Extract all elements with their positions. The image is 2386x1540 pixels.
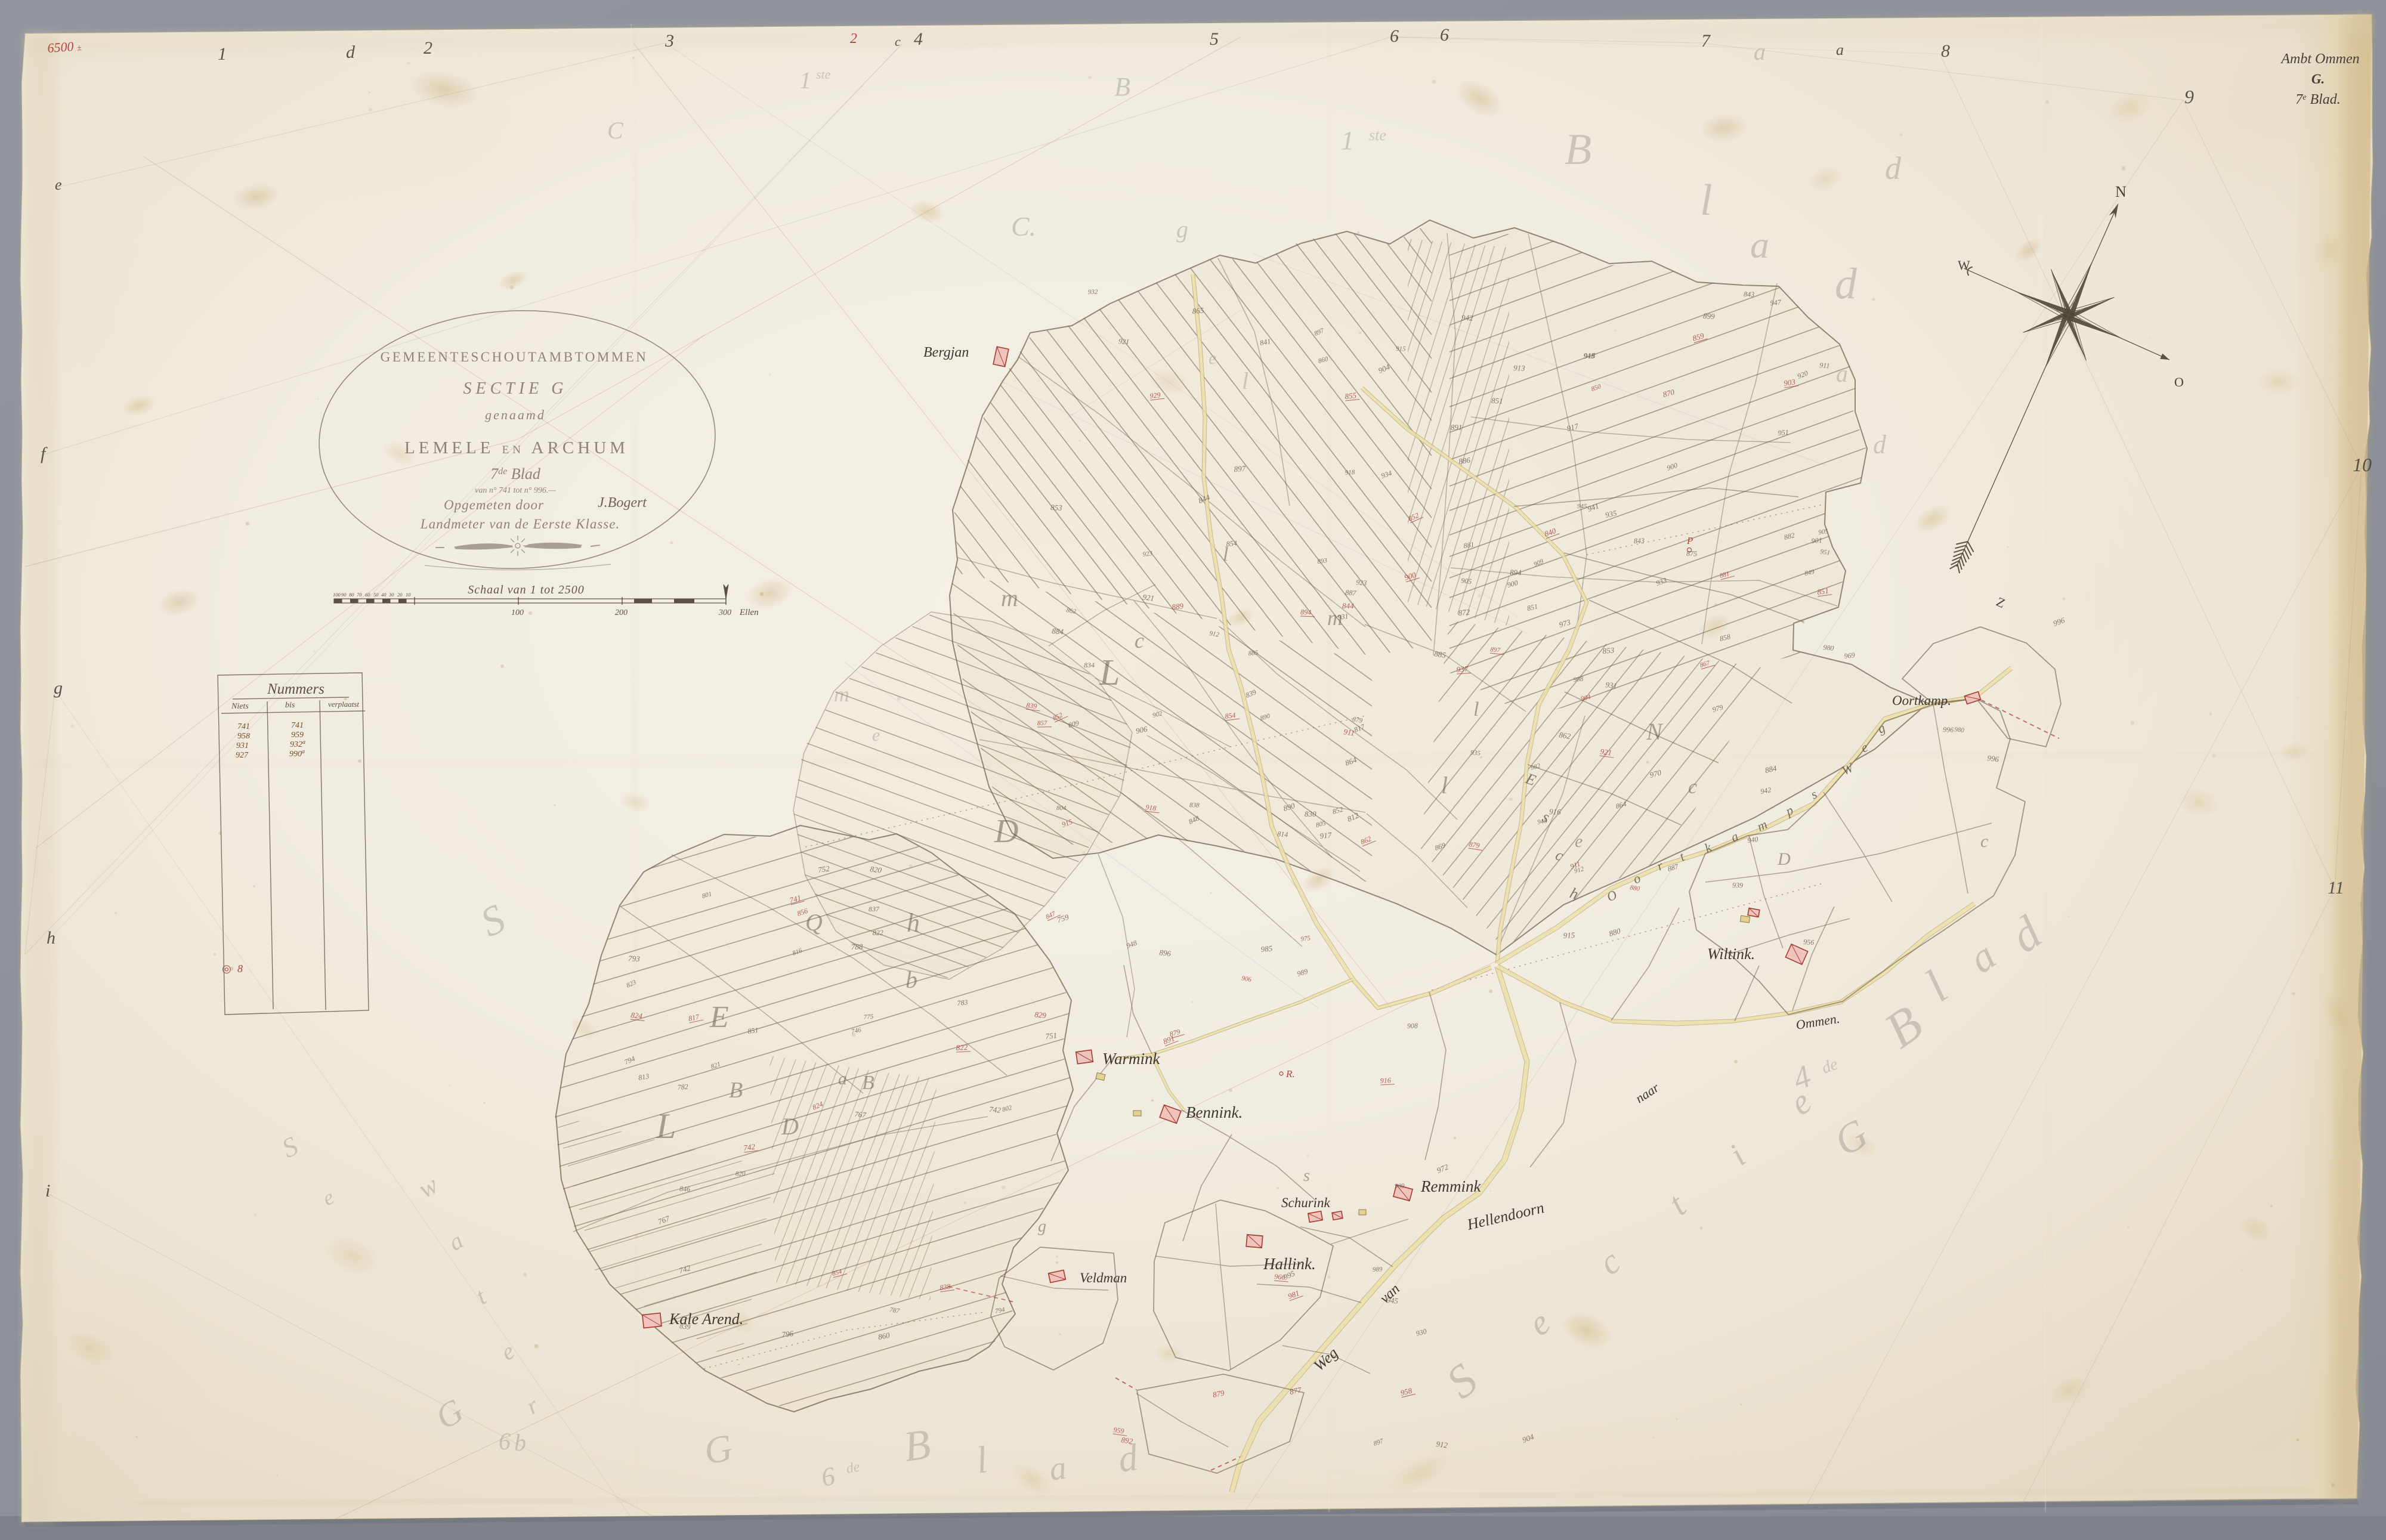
svg-text:788: 788 — [851, 942, 864, 951]
svg-text:GEMEENTESCHOUTAMBTOMMEN: GEMEENTESCHOUTAMBTOMMEN — [381, 350, 648, 364]
svg-text:◎: ◎ — [222, 963, 231, 975]
svg-text:a: a — [1836, 360, 1848, 387]
svg-text:g: g — [54, 678, 63, 698]
svg-text:909: 909 — [1395, 1183, 1405, 1190]
svg-text:767: 767 — [854, 1109, 867, 1120]
svg-text:923: 923 — [1142, 550, 1153, 558]
svg-text:894: 894 — [1300, 608, 1311, 617]
svg-text:988: 988 — [1573, 676, 1584, 684]
svg-text:3: 3 — [665, 31, 674, 51]
svg-text:Ambt Ommen: Ambt Ommen — [2280, 51, 2359, 67]
svg-text:846: 846 — [679, 1185, 690, 1193]
svg-text:40: 40 — [381, 592, 387, 598]
svg-text:913: 913 — [1513, 363, 1526, 373]
svg-text:Landmeter van de Eerste Klasse: Landmeter van de Eerste Klasse. — [420, 517, 620, 531]
svg-text:917: 917 — [1319, 830, 1332, 840]
svg-text:951: 951 — [1820, 548, 1831, 556]
svg-text:ste: ste — [816, 67, 831, 82]
svg-text:921: 921 — [1142, 592, 1155, 603]
svg-text:862: 862 — [1559, 730, 1572, 741]
svg-text:D: D — [994, 813, 1018, 850]
svg-text:918: 918 — [1584, 351, 1596, 360]
svg-text:796: 796 — [781, 1329, 794, 1339]
svg-text:985: 985 — [1260, 944, 1273, 954]
svg-text:L: L — [656, 1106, 676, 1146]
svg-text:Schaal van 1 tot 2500: Schaal van 1 tot 2500 — [468, 583, 584, 596]
svg-text:b: b — [514, 1429, 526, 1456]
svg-text:881: 881 — [1463, 540, 1475, 550]
svg-text:L: L — [1099, 653, 1120, 693]
svg-text:937: 937 — [1456, 664, 1469, 674]
svg-text:916: 916 — [1380, 1076, 1391, 1085]
svg-text:931: 931 — [236, 741, 249, 750]
svg-text:m: m — [1327, 606, 1343, 630]
svg-text:8: 8 — [1941, 41, 1950, 61]
svg-text:a: a — [1750, 224, 1769, 266]
svg-text:839: 839 — [1026, 701, 1038, 710]
svg-text:932: 932 — [1088, 289, 1098, 296]
svg-text:genaamd: genaamd — [485, 407, 546, 422]
svg-text:966: 966 — [1274, 1272, 1285, 1282]
svg-text:820: 820 — [735, 1170, 746, 1177]
svg-text:875: 875 — [1686, 549, 1697, 558]
svg-text:751: 751 — [1045, 1031, 1058, 1041]
svg-text:851: 851 — [747, 1026, 759, 1035]
svg-text:884: 884 — [1052, 626, 1064, 636]
svg-text:804: 804 — [1056, 805, 1067, 812]
svg-text:824: 824 — [631, 1010, 643, 1021]
svg-text:899: 899 — [1703, 311, 1716, 321]
svg-text:N: N — [2115, 183, 2127, 200]
svg-text:W: W — [1958, 258, 1970, 273]
svg-text:940: 940 — [1747, 835, 1759, 845]
svg-text:verplaatst: verplaatst — [328, 700, 359, 709]
svg-text:893: 893 — [1317, 557, 1328, 565]
svg-text:891: 891 — [1451, 423, 1463, 432]
svg-text:918: 918 — [1345, 469, 1355, 477]
svg-text:100: 100 — [511, 608, 524, 617]
svg-text:O: O — [2174, 375, 2184, 389]
svg-text:872: 872 — [1458, 607, 1470, 617]
svg-text:889: 889 — [1172, 601, 1184, 611]
svg-text:van n° 741 tot n° 996.—: van n° 741 tot n° 996.— — [475, 486, 556, 495]
svg-text:9: 9 — [2184, 86, 2194, 107]
svg-text:956: 956 — [1803, 938, 1815, 947]
svg-text:1: 1 — [218, 44, 227, 64]
svg-text:929: 929 — [1149, 391, 1161, 400]
svg-text:b: b — [905, 966, 917, 993]
svg-text:Q: Q — [805, 909, 823, 936]
svg-text:752: 752 — [817, 864, 830, 874]
svg-text:l: l — [1700, 176, 1713, 225]
svg-text:996: 996 — [1943, 725, 1954, 734]
svg-text:2: 2 — [850, 31, 857, 47]
svg-text:935: 935 — [1470, 749, 1481, 757]
svg-text:915: 915 — [1563, 930, 1575, 940]
svg-text:838: 838 — [1189, 802, 1200, 809]
svg-text:a: a — [1754, 38, 1766, 65]
svg-text:6: 6 — [1390, 26, 1399, 46]
svg-text:50: 50 — [373, 592, 379, 598]
svg-text:844: 844 — [1342, 601, 1354, 610]
svg-text:911: 911 — [1819, 361, 1830, 370]
svg-text:901: 901 — [1811, 536, 1822, 545]
svg-text:c: c — [1980, 831, 1988, 851]
svg-text:Warmink: Warmink — [1102, 1050, 1161, 1068]
svg-text:e: e — [55, 176, 62, 193]
svg-text:30: 30 — [388, 592, 394, 598]
svg-text:931: 931 — [1605, 680, 1618, 690]
svg-text:5: 5 — [1210, 29, 1219, 49]
svg-text:80: 80 — [349, 592, 354, 598]
svg-text:g: g — [1176, 216, 1188, 243]
svg-text:4: 4 — [914, 29, 923, 49]
svg-text:742: 742 — [989, 1105, 1002, 1115]
svg-text:1: 1 — [799, 67, 811, 94]
svg-text:6: 6 — [499, 1428, 511, 1455]
svg-text:912: 912 — [1436, 1439, 1449, 1450]
svg-text:10: 10 — [2353, 454, 2372, 475]
svg-text:820: 820 — [870, 864, 883, 875]
svg-text:d: d — [346, 42, 356, 62]
svg-text:897: 897 — [1490, 646, 1501, 654]
svg-text:i: i — [45, 1181, 50, 1201]
svg-text:783: 783 — [957, 998, 968, 1007]
svg-text:830: 830 — [1305, 809, 1316, 818]
svg-text:915: 915 — [1396, 345, 1406, 352]
svg-text:e: e — [1209, 348, 1216, 368]
svg-text:945: 945 — [1577, 503, 1587, 510]
svg-text:m: m — [1001, 585, 1018, 611]
svg-text:11: 11 — [2328, 878, 2344, 898]
svg-text:P: P — [1686, 535, 1693, 546]
svg-text:886: 886 — [1458, 455, 1471, 466]
svg-text:741: 741 — [291, 721, 304, 730]
svg-text:7: 7 — [1701, 31, 1711, 51]
svg-text:980: 980 — [1954, 726, 1965, 734]
svg-text:200: 200 — [615, 608, 628, 617]
svg-text:897: 897 — [1234, 464, 1246, 474]
svg-text:843: 843 — [1744, 290, 1754, 299]
svg-text:D: D — [1777, 849, 1791, 869]
svg-text:Wiltink.: Wiltink. — [1707, 945, 1755, 963]
svg-text:6: 6 — [1440, 25, 1449, 45]
svg-text:Remmink: Remmink — [1420, 1177, 1481, 1195]
svg-text:865: 865 — [1192, 306, 1204, 316]
svg-text:741: 741 — [237, 722, 250, 731]
svg-text:100: 100 — [333, 592, 341, 598]
svg-text:e: e — [1575, 831, 1583, 851]
svg-text:m: m — [834, 682, 849, 706]
svg-text:887: 887 — [1345, 588, 1357, 598]
svg-text:834: 834 — [1084, 661, 1095, 669]
svg-text:896: 896 — [1159, 948, 1172, 958]
svg-text:s: s — [1303, 1167, 1310, 1185]
svg-text:R.: R. — [1285, 1068, 1295, 1080]
svg-text:921: 921 — [1118, 337, 1130, 346]
svg-text:775: 775 — [863, 1013, 874, 1021]
svg-text:Bennink.: Bennink. — [1186, 1103, 1243, 1121]
svg-text:Veldman: Veldman — [1080, 1270, 1127, 1285]
svg-text:742: 742 — [743, 1142, 756, 1152]
svg-text:894: 894 — [1510, 568, 1522, 577]
svg-text:c: c — [895, 34, 901, 49]
svg-text:947: 947 — [1770, 298, 1782, 307]
svg-text:2: 2 — [424, 38, 432, 58]
svg-text:70: 70 — [357, 592, 362, 598]
svg-text:B: B — [729, 1078, 743, 1103]
svg-text:a: a — [1836, 41, 1844, 58]
svg-text:853: 853 — [1050, 503, 1063, 512]
svg-text:918: 918 — [1145, 803, 1157, 812]
svg-text:B: B — [1114, 72, 1130, 101]
svg-text:Nummers: Nummers — [267, 681, 324, 697]
svg-text:N: N — [1646, 718, 1664, 745]
svg-text:908: 908 — [1407, 1022, 1418, 1030]
svg-text:782: 782 — [677, 1083, 688, 1091]
svg-text:942: 942 — [1461, 313, 1473, 322]
svg-text:l: l — [1223, 543, 1228, 565]
svg-text:1: 1 — [1341, 126, 1354, 155]
svg-text:Bergjan: Bergjan — [923, 345, 969, 360]
svg-text:E: E — [709, 1000, 729, 1034]
svg-text:Hallink.: Hallink. — [1263, 1255, 1316, 1273]
svg-text:951: 951 — [1778, 428, 1789, 437]
svg-text:822: 822 — [873, 928, 883, 937]
svg-text:996: 996 — [1987, 753, 2000, 763]
svg-text:905: 905 — [1818, 528, 1829, 536]
svg-text:851: 851 — [1491, 396, 1503, 406]
svg-text:Oortkamp.: Oortkamp. — [1892, 693, 1951, 708]
svg-text:837: 837 — [869, 905, 880, 913]
svg-text:Kale Arend.: Kale Arend. — [669, 1310, 743, 1328]
svg-text:a: a — [838, 1069, 847, 1088]
svg-text:l: l — [1242, 367, 1248, 394]
svg-text:975: 975 — [1300, 935, 1311, 943]
svg-text:7de Blad: 7de Blad — [490, 465, 541, 483]
svg-text:300: 300 — [718, 608, 731, 617]
svg-text:905: 905 — [1461, 576, 1472, 586]
svg-text:853: 853 — [1602, 645, 1615, 655]
svg-text:855: 855 — [1345, 391, 1357, 401]
svg-text:923: 923 — [1356, 578, 1367, 587]
svg-text:793: 793 — [628, 954, 641, 963]
svg-text:Schurink: Schurink — [1281, 1195, 1331, 1210]
svg-text:h: h — [47, 928, 55, 948]
svg-text:989: 989 — [1373, 1266, 1383, 1273]
svg-text:d: d — [1873, 430, 1887, 459]
svg-text:C: C — [607, 117, 624, 144]
svg-text:885: 885 — [1248, 650, 1259, 657]
svg-text:Ellen: Ellen — [739, 608, 759, 617]
svg-text:7e Blad.: 7e Blad. — [2295, 92, 2341, 107]
svg-text:d: d — [1885, 150, 1902, 186]
svg-text:g: g — [1038, 1217, 1046, 1236]
svg-text:SECTIE G: SECTIE G — [463, 379, 568, 398]
svg-text:l: l — [1473, 698, 1479, 720]
svg-text:857: 857 — [1037, 720, 1047, 727]
svg-text:D: D — [781, 1113, 799, 1140]
svg-text:885: 885 — [1434, 649, 1447, 660]
svg-text:B: B — [1565, 125, 1591, 174]
svg-text:822: 822 — [956, 1043, 968, 1052]
svg-text:90: 90 — [341, 592, 347, 598]
svg-text:843: 843 — [1634, 536, 1645, 545]
svg-text:60: 60 — [365, 592, 370, 598]
svg-text:G.: G. — [2311, 72, 2325, 86]
svg-text:d: d — [1835, 259, 1858, 308]
svg-text:e: e — [872, 725, 880, 745]
svg-text:8: 8 — [237, 963, 243, 975]
svg-text:c: c — [1135, 629, 1144, 653]
svg-text:h: h — [907, 908, 920, 938]
svg-text:829: 829 — [1034, 1010, 1047, 1020]
svg-text:10: 10 — [406, 592, 411, 598]
svg-text:854: 854 — [1225, 711, 1237, 720]
svg-text:l: l — [1441, 772, 1448, 799]
svg-text:958: 958 — [237, 732, 250, 741]
svg-text:Niets: Niets — [231, 702, 249, 711]
svg-text:B: B — [862, 1072, 874, 1094]
svg-text:939: 939 — [1732, 881, 1743, 889]
svg-text:ste: ste — [1369, 126, 1386, 144]
svg-text:980: 980 — [1823, 643, 1834, 653]
svg-text:959: 959 — [291, 731, 304, 740]
svg-text:Opgemeten door: Opgemeten door — [444, 497, 544, 512]
svg-text:c: c — [1688, 776, 1697, 798]
svg-text:J.Bogert: J.Bogert — [598, 495, 647, 511]
svg-text:969: 969 — [1844, 651, 1855, 660]
svg-text:20: 20 — [397, 592, 403, 598]
svg-text:bis: bis — [285, 701, 295, 710]
svg-text:814: 814 — [1277, 830, 1288, 839]
svg-text:927: 927 — [236, 751, 249, 760]
svg-text:C.: C. — [1011, 211, 1036, 242]
